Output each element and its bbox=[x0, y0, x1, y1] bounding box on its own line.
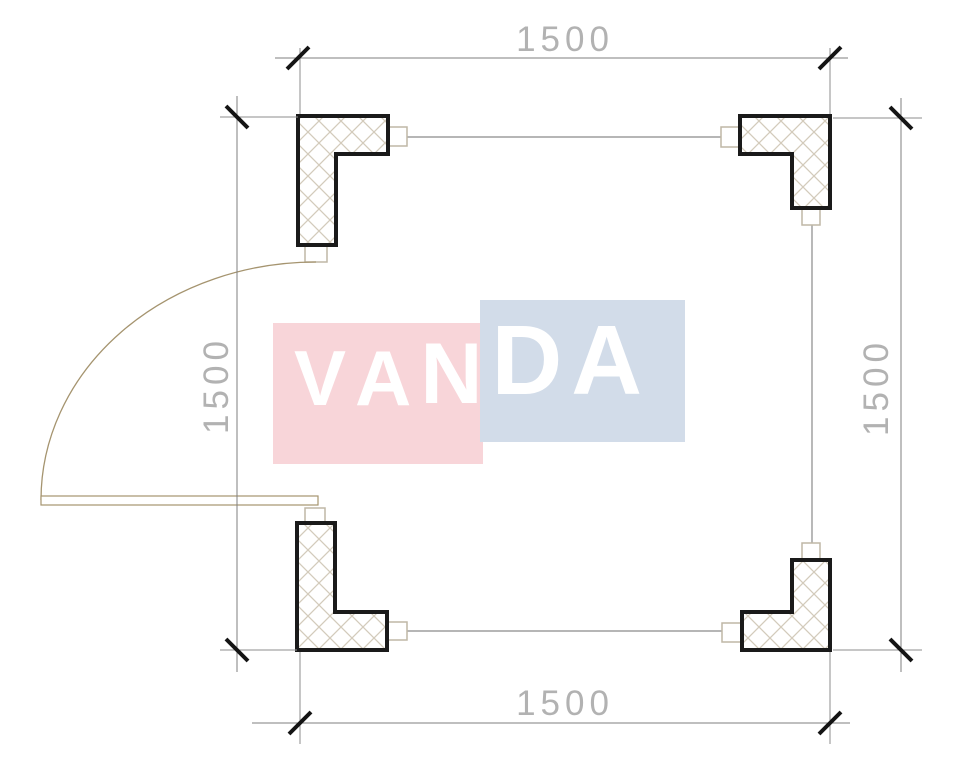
connector bbox=[387, 622, 407, 640]
floor-plan-drawing: V A N D A bbox=[0, 0, 960, 768]
dimension-label-left: 1500 bbox=[199, 310, 235, 460]
dimension-label-top: 1500 bbox=[490, 22, 640, 58]
dimension-label-bottom: 1500 bbox=[490, 686, 640, 722]
column-top-right bbox=[740, 116, 830, 208]
connector bbox=[388, 127, 407, 146]
door bbox=[41, 262, 318, 505]
connector bbox=[802, 208, 820, 225]
wall-lines bbox=[407, 137, 812, 631]
column-top-left bbox=[298, 116, 388, 245]
connector bbox=[722, 623, 742, 642]
dimension-label-right: 1500 bbox=[859, 312, 895, 462]
corner-columns bbox=[297, 116, 830, 650]
panel-connectors bbox=[305, 127, 820, 642]
door-swing-arc bbox=[41, 262, 316, 500]
column-bottom-right bbox=[742, 560, 830, 650]
column-bottom-left bbox=[297, 523, 387, 650]
connector bbox=[721, 127, 740, 147]
plan-svg bbox=[0, 0, 960, 768]
connector bbox=[305, 245, 327, 262]
door-leaf bbox=[41, 496, 318, 505]
connector bbox=[802, 543, 820, 560]
connector bbox=[305, 508, 325, 523]
